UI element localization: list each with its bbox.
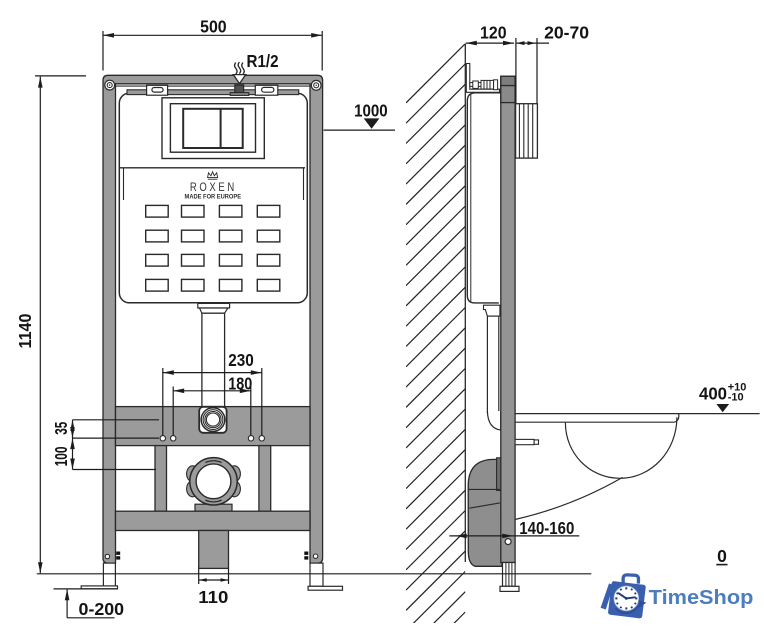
svg-text:180: 180 <box>228 373 252 393</box>
svg-text:ROXEN: ROXEN <box>190 182 237 194</box>
svg-text:1140: 1140 <box>15 313 35 348</box>
svg-text:500: 500 <box>200 17 227 37</box>
svg-text:-10: -10 <box>728 392 744 404</box>
svg-text:TimeShop: TimeShop <box>649 586 754 609</box>
svg-text:110: 110 <box>198 587 228 607</box>
svg-text:0: 0 <box>717 546 727 566</box>
svg-text:20-70: 20-70 <box>544 23 589 43</box>
svg-text:140-160: 140-160 <box>519 518 574 538</box>
svg-text:1000: 1000 <box>354 101 388 121</box>
svg-text:100: 100 <box>51 446 71 466</box>
svg-text:35: 35 <box>51 422 71 435</box>
svg-text:MADE FOR EUROPE: MADE FOR EUROPE <box>185 194 242 201</box>
svg-text:400: 400 <box>699 384 727 404</box>
svg-text:0-200: 0-200 <box>79 599 125 619</box>
svg-text:120: 120 <box>480 23 507 43</box>
svg-text:R1/2: R1/2 <box>247 51 279 71</box>
svg-text:230: 230 <box>228 350 254 370</box>
